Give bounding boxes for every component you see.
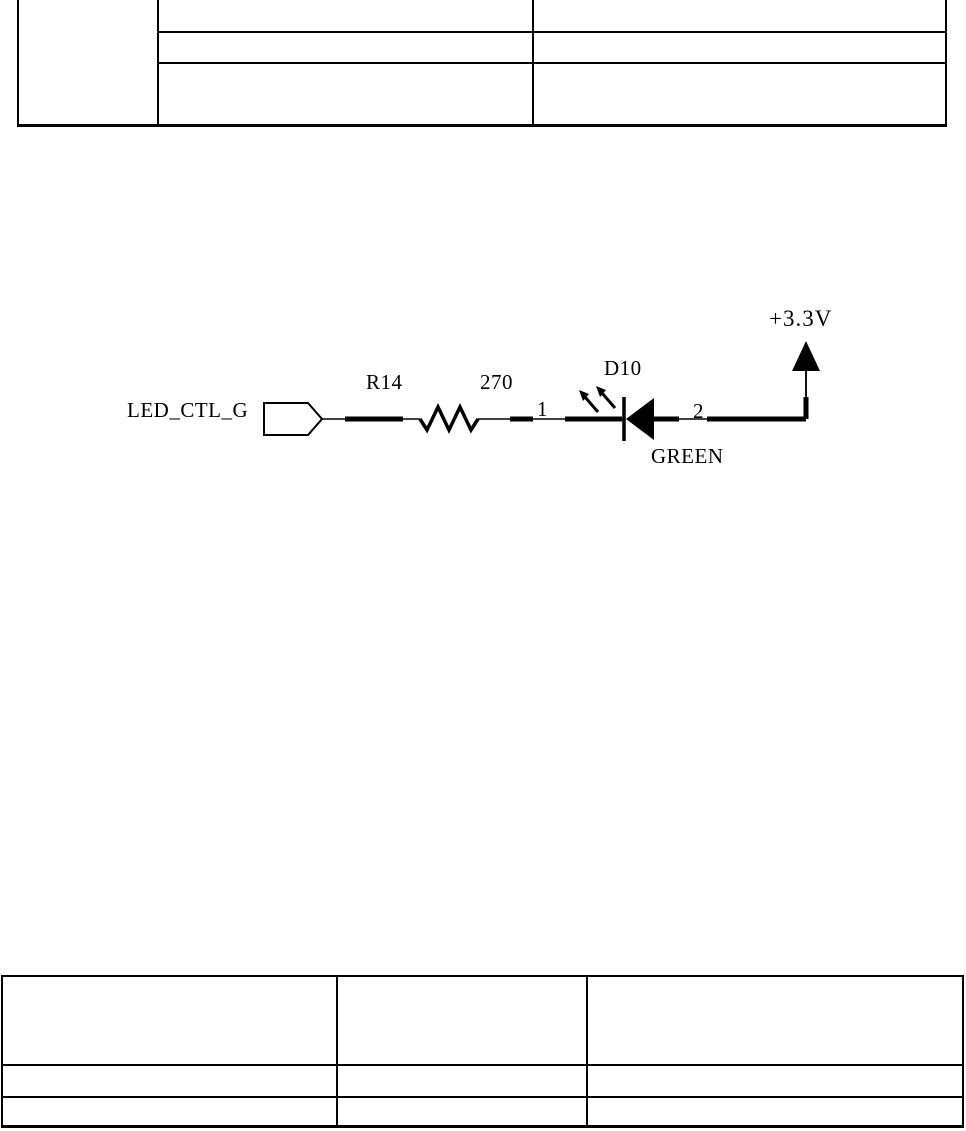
bottom-table-right-border bbox=[962, 975, 964, 1128]
bottom-table-row-divider-2 bbox=[1, 1096, 964, 1098]
bottom-table-left-border bbox=[1, 975, 3, 1128]
resistor-symbol bbox=[420, 407, 478, 430]
led-circuit-schematic: LED_CTL_G R14 270 1 2 D10 GREEN bbox=[0, 0, 966, 1131]
pin1-label: 1 bbox=[537, 397, 548, 421]
power-symbol-triangle bbox=[792, 341, 820, 371]
resistor-ref-label: R14 bbox=[366, 370, 403, 394]
bottom-table-top-border bbox=[1, 975, 964, 977]
power-net-label: +3.3V bbox=[769, 306, 832, 331]
bottom-table-col-divider-1 bbox=[336, 975, 338, 1128]
port-symbol bbox=[264, 403, 322, 435]
bottom-table-row-divider-1 bbox=[1, 1064, 964, 1066]
led-emission-arrow-2 bbox=[596, 386, 615, 408]
led-triangle bbox=[626, 398, 654, 440]
led-emission-arrow-1 bbox=[579, 390, 598, 412]
led-color-label: GREEN bbox=[651, 444, 724, 468]
bottom-table-col-divider-2 bbox=[586, 975, 588, 1128]
document-page: LED_CTL_G R14 270 1 2 D10 GREEN bbox=[0, 0, 966, 1131]
pin2-label: 2 bbox=[693, 399, 704, 423]
resistor-value-label: 270 bbox=[480, 370, 513, 394]
net-label: LED_CTL_G bbox=[127, 398, 248, 422]
bottom-table-bottom-border bbox=[1, 1125, 964, 1128]
led-ref-label: D10 bbox=[604, 356, 642, 380]
